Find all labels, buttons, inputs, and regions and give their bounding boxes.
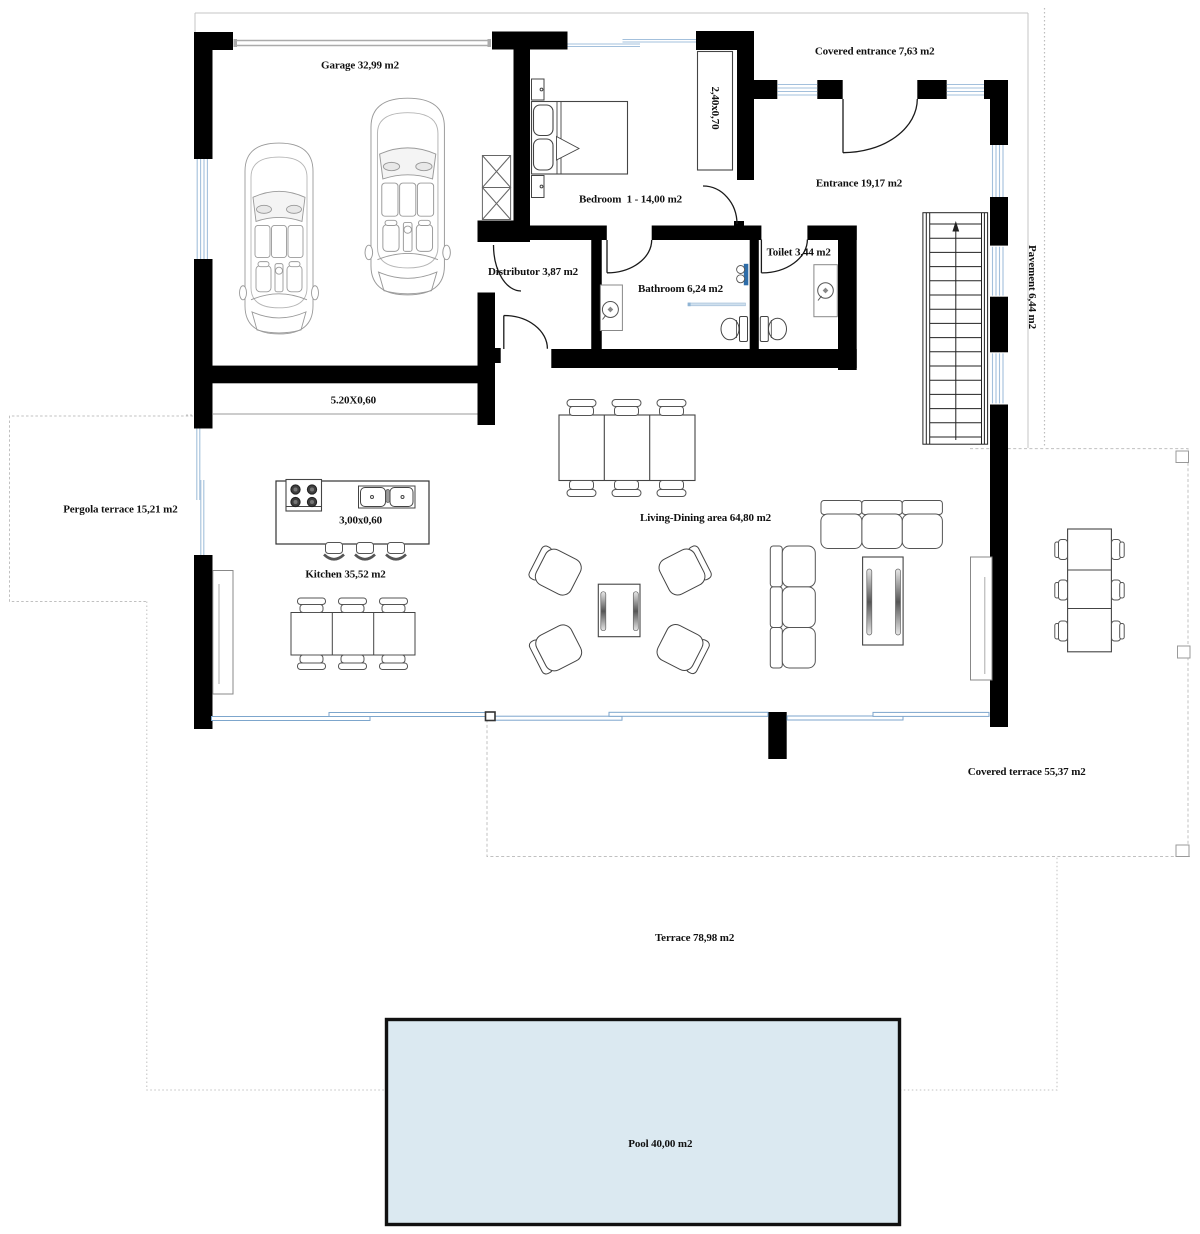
- svg-text:Terrace 78,98 m2: Terrace 78,98 m2: [655, 932, 735, 944]
- svg-text:Pool 40,00 m2: Pool 40,00 m2: [628, 1138, 693, 1150]
- svg-text:Distributor 3,87 m2: Distributor 3,87 m2: [488, 266, 579, 278]
- svg-text:Living-Dining area 64,80 m2: Living-Dining area 64,80 m2: [640, 512, 772, 524]
- svg-text:Kitchen 35,52 m2: Kitchen 35,52 m2: [305, 569, 386, 581]
- svg-text:Bedroom 1 - 14,00 m2: Bedroom 1 - 14,00 m2: [579, 194, 683, 206]
- svg-text:5.20X0,60: 5.20X0,60: [331, 394, 377, 406]
- svg-text:Entrance 19,17 m2: Entrance 19,17 m2: [816, 178, 903, 190]
- svg-text:3,00x0,60: 3,00x0,60: [339, 515, 383, 527]
- svg-text:Covered terrace 55,37 m2: Covered terrace 55,37 m2: [968, 766, 1086, 778]
- svg-text:Garage 32,99 m2: Garage 32,99 m2: [321, 59, 400, 71]
- svg-text:2,40x0,70: 2,40x0,70: [709, 87, 721, 131]
- svg-text:Bathroom 6,24 m2: Bathroom 6,24 m2: [638, 283, 724, 295]
- svg-text:Covered entrance 7,63 m2: Covered entrance 7,63 m2: [815, 46, 935, 58]
- svg-text:Pergola terrace 15,21 m2: Pergola terrace 15,21 m2: [63, 504, 178, 516]
- svg-text:Pavement 6,44 m2: Pavement 6,44 m2: [1026, 245, 1038, 330]
- svg-text:Toilet 3,44 m2: Toilet 3,44 m2: [767, 247, 832, 259]
